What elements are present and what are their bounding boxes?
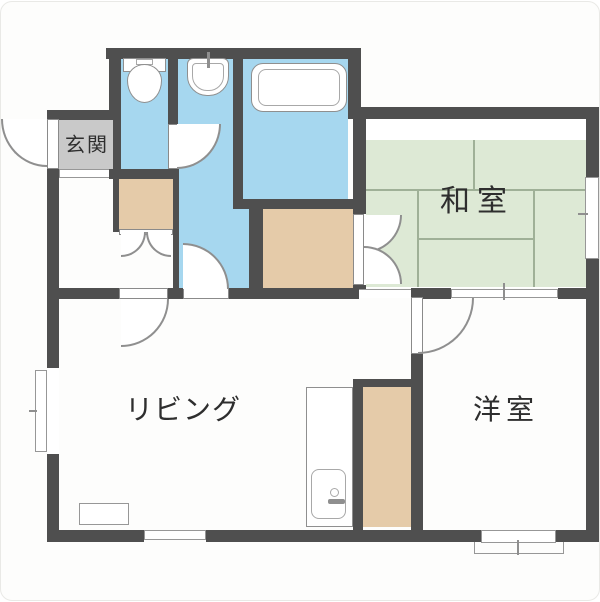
wall-toilet-washroom [168, 48, 178, 124]
kitchen-faucet-knob [330, 488, 339, 497]
wall-left [47, 169, 59, 542]
sliding-door-tick [503, 283, 505, 300]
living-cabinet [79, 503, 129, 525]
japanese-room-sw-opening [359, 289, 411, 298]
japanese-room-right-window-tick [578, 213, 588, 215]
entry-step [59, 169, 114, 178]
western-room-label: 洋室 [473, 388, 539, 428]
wall-mid-e [558, 288, 599, 299]
wall-oshiire-left [249, 209, 263, 289]
wall-hall-closet-left [113, 172, 119, 232]
living-left-window [47, 368, 59, 454]
bathtub-inner [258, 69, 340, 106]
living-left-window-tick [29, 410, 37, 412]
wall-entry-toilet [113, 117, 121, 169]
entry-label: 玄関 [65, 129, 109, 158]
washbasin-faucet [207, 52, 210, 68]
wall-hall-corridor [173, 179, 179, 291]
wall-bath-right [348, 48, 361, 107]
bedroom-closet-floor [363, 387, 411, 527]
bedroom-bottom-window-frame [474, 542, 564, 554]
oshiire-door-leaf [353, 214, 364, 285]
wall-bottom-b [206, 530, 481, 542]
tatami-mat-line [533, 191, 535, 287]
living-door-leaf [119, 288, 168, 299]
corridor-extension-floor [233, 209, 249, 289]
living-bottom-window [144, 530, 206, 540]
kitchen-faucet-bar [328, 499, 345, 504]
bedroom-door-swing [418, 298, 474, 354]
wall-mid-b [168, 288, 183, 299]
hall-closet-door-swing-right [146, 232, 171, 257]
hall-closet-door-swing-left [121, 232, 146, 257]
wall-washroom-bath [233, 48, 243, 209]
wall-bath-bottom [233, 199, 361, 209]
entry-door-leaf [47, 119, 59, 169]
japanese-room-label: 和室 [440, 176, 514, 220]
oshiire-closet-floor [263, 209, 353, 289]
bedroom-bottom-window-tick [517, 540, 519, 555]
japanese-room-right-window [585, 177, 599, 259]
wall-kitchen-right [353, 379, 363, 530]
wall-kitchen-top-stub [353, 379, 411, 387]
entry-door-swing [1, 119, 47, 167]
tatami-mat-line [419, 238, 533, 240]
living-door-swing [121, 299, 169, 347]
hall-closet-floor [119, 179, 173, 229]
corridor-door-leaf [183, 288, 229, 299]
floor-plan: 玄関 和室 リビング 洋室 [0, 1, 600, 601]
wall-mid-c [229, 288, 359, 299]
wall-mid-a [47, 288, 119, 299]
wall-toilet-left [109, 48, 121, 118]
wall-toilet-bottom [109, 169, 179, 179]
wall-japanese-room-left [353, 107, 366, 214]
living-room-label: リビング [125, 388, 241, 428]
wall-bedroom-left [411, 354, 423, 530]
kitchen-sink-icon [311, 469, 346, 519]
wall-bottom-a [47, 530, 144, 542]
wall-japanese-room-top [348, 107, 599, 119]
wall-right-b [586, 259, 599, 542]
